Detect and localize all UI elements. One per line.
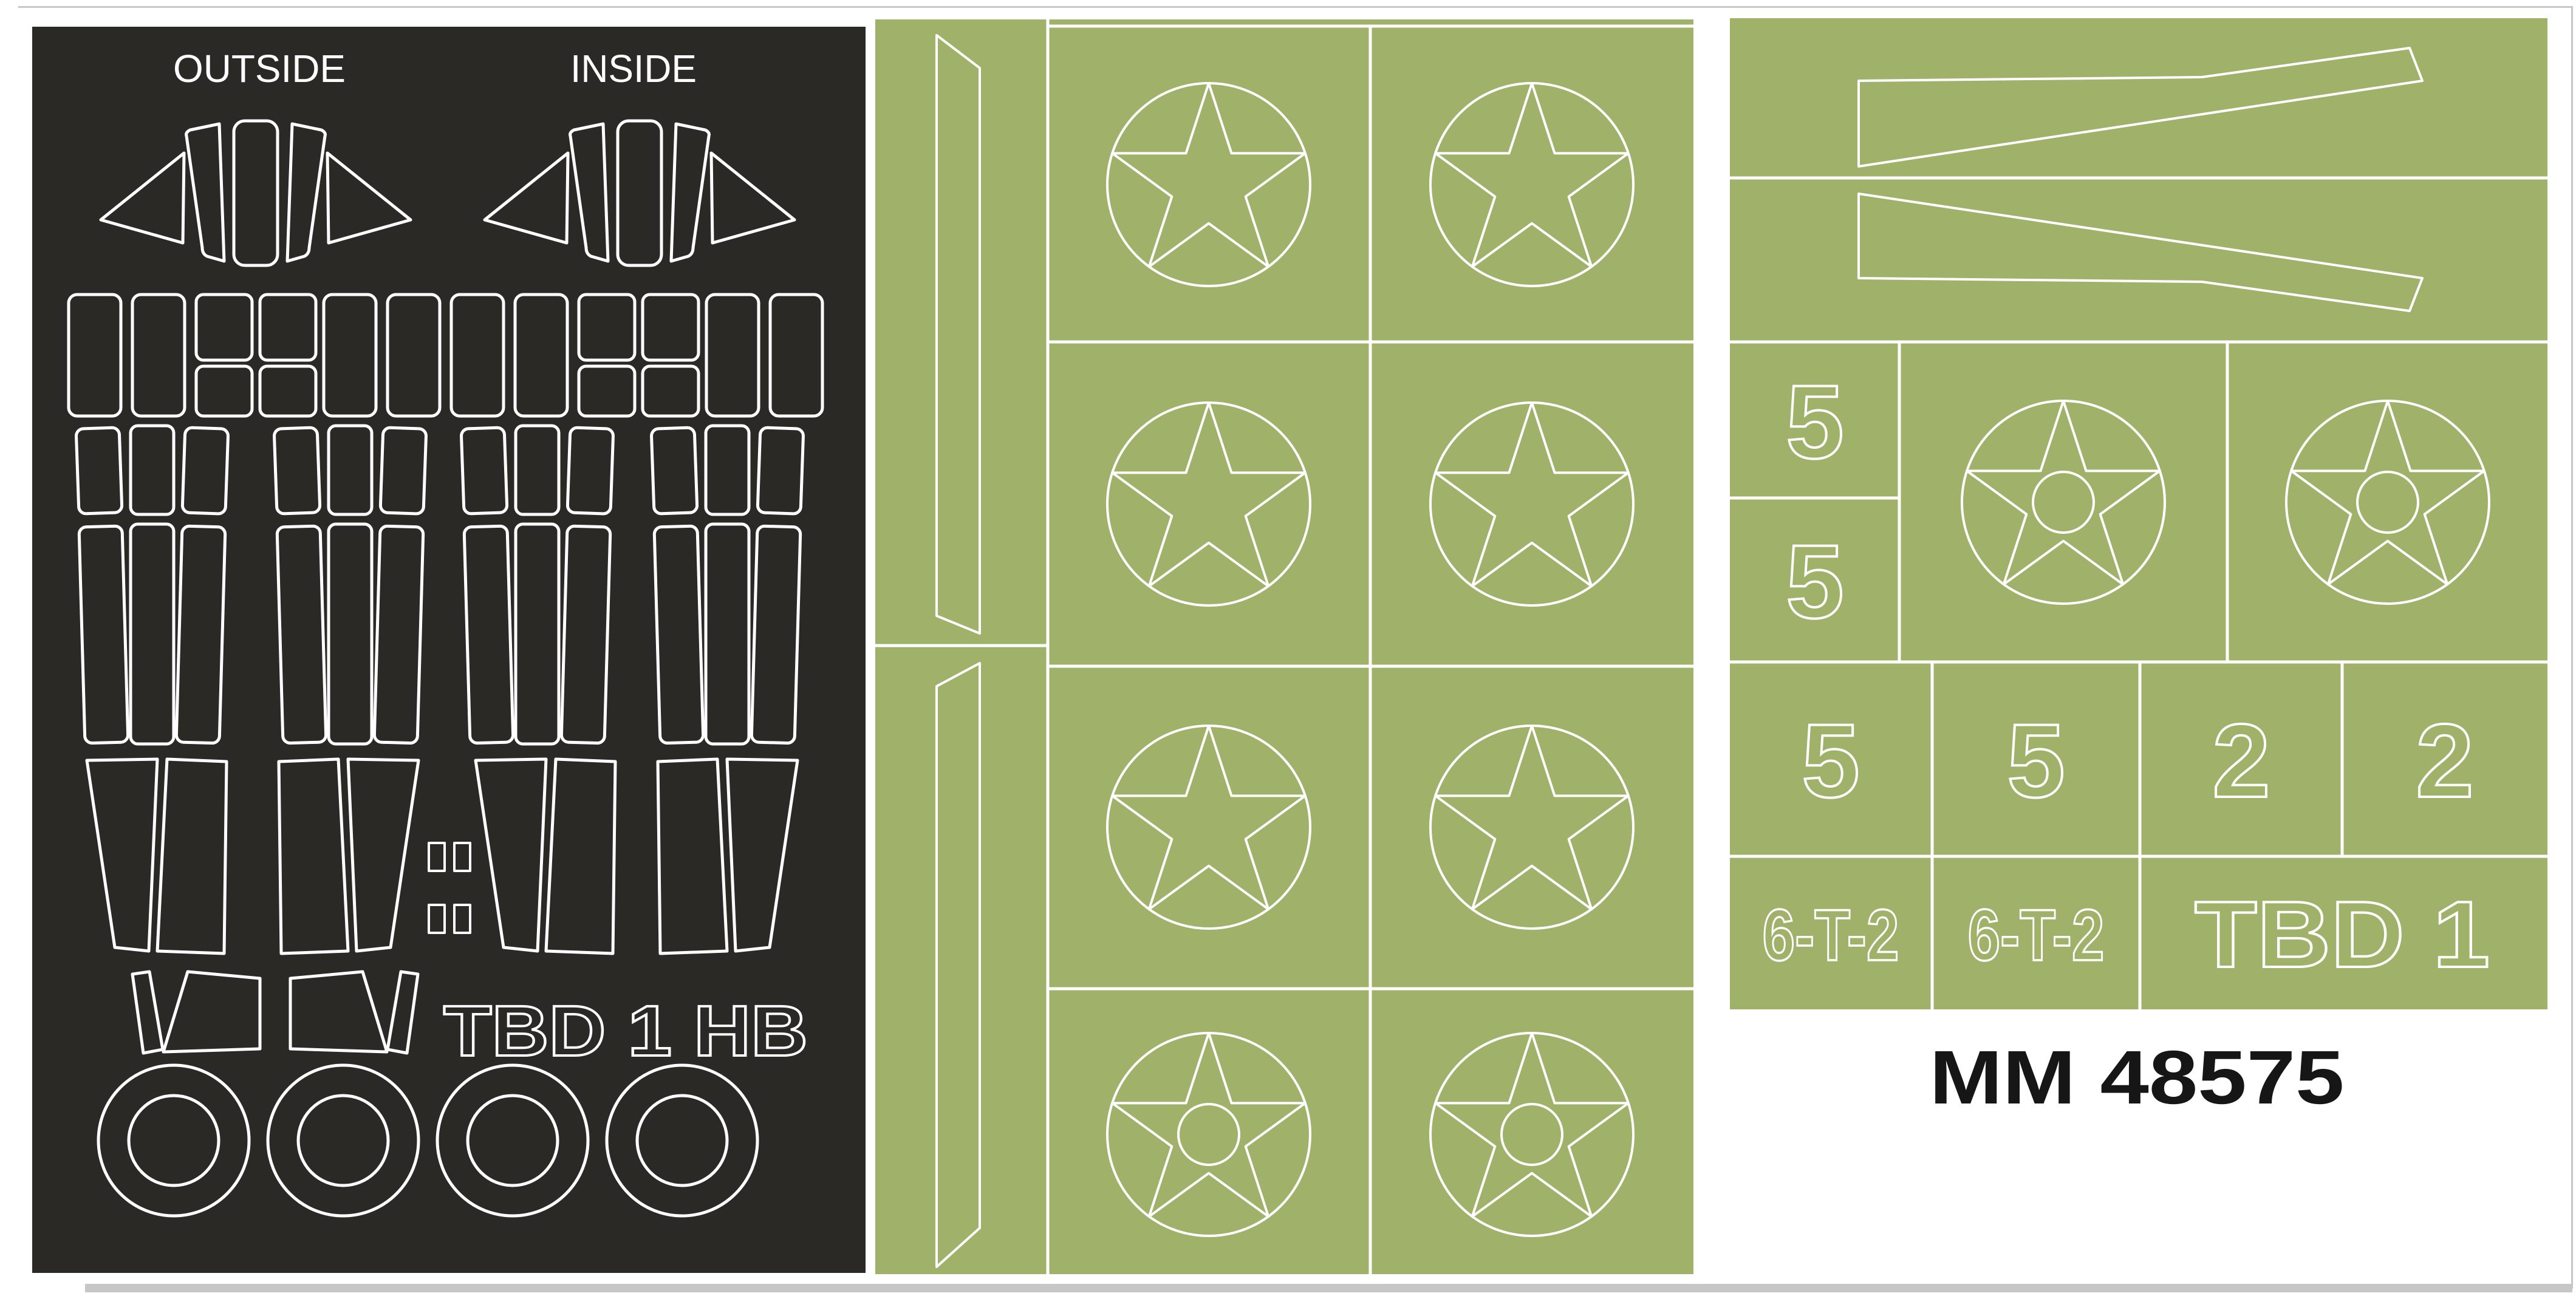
sheet-stencil-code: TBD 1 HB (443, 991, 808, 1071)
inside-label: INSIDE (570, 47, 697, 90)
mask-set-scan: OUTSIDE INSIDE (0, 0, 2576, 1296)
code-mask-tbd1: TBD 1 (2195, 882, 2490, 987)
code-mask-6t2-b: 6-T-2 (1968, 895, 2105, 976)
product-code: MM 48575 (1930, 1035, 2345, 1120)
black-sheet-background (32, 27, 866, 1273)
left-sheet-canopy-masks: OUTSIDE INSIDE (32, 27, 866, 1273)
outside-label: OUTSIDE (173, 47, 346, 90)
numeral-mask-5-a: 5 (1786, 364, 1844, 480)
middle-sheet-insignia-masks (875, 19, 1693, 1274)
numeral-mask-5-b: 5 (1786, 524, 1844, 640)
numeral-mask-row-1: 5 (1802, 703, 1860, 819)
scan-edge-bottom (85, 1284, 2572, 1292)
numeral-mask-row-3: 2 (2212, 703, 2270, 819)
scan-edge-right (2571, 6, 2573, 1289)
right-sheet-code-masks: 5 5 5 5 2 2 6-T-2 6-T-2 TBD 1 (1730, 18, 2547, 1009)
mask-sheets-figure: OUTSIDE INSIDE (0, 0, 2576, 1296)
code-mask-6t2-a: 6-T-2 (1763, 895, 1899, 976)
numeral-mask-row-2: 5 (2007, 703, 2065, 819)
numeral-mask-row-4: 2 (2416, 703, 2474, 819)
scan-edge-top (18, 6, 2572, 8)
